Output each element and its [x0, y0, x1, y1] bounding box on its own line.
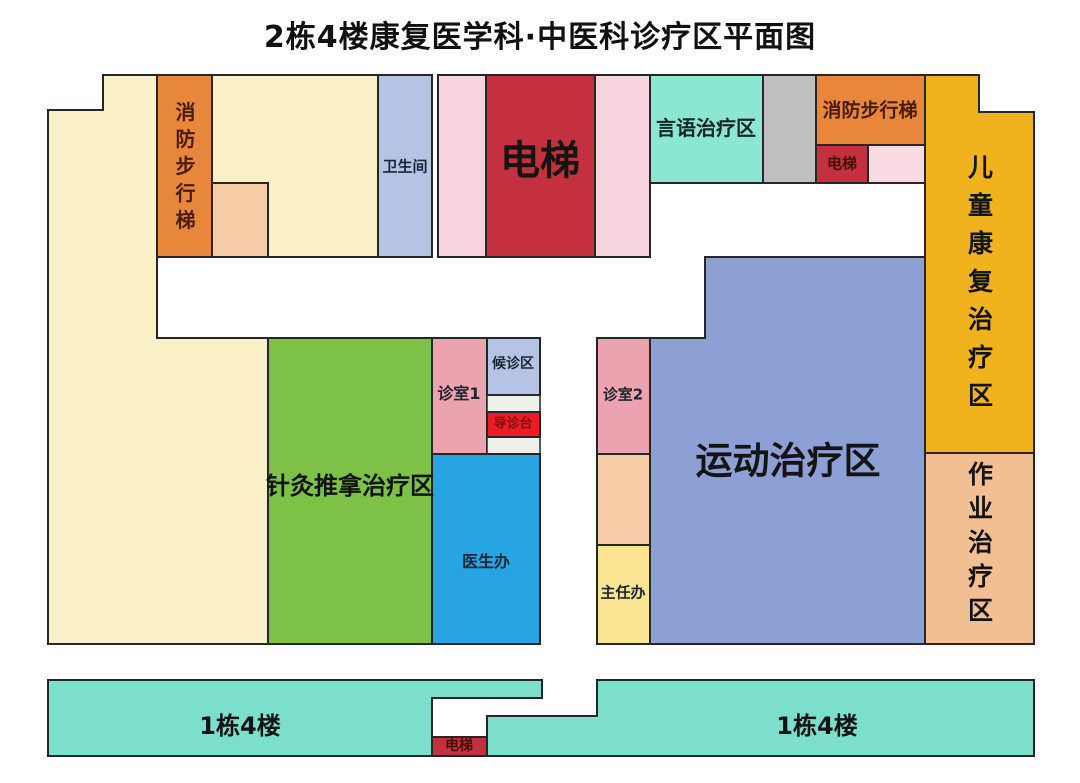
- gray-room: [763, 75, 816, 183]
- director-office-room: [597, 545, 650, 644]
- building1-strip-right: [487, 680, 1034, 756]
- fire-stairs-left-room: [157, 75, 212, 257]
- consult-room-2: [597, 338, 650, 454]
- elevator-main-room: [486, 75, 595, 257]
- elevator-top-right-room: [816, 145, 868, 183]
- pink-block-top-right: [868, 145, 925, 183]
- children-rehab-room: [925, 75, 1034, 453]
- occupational-therapy-room: [925, 453, 1034, 644]
- floor-plan: 2栋4楼康复医学科·中医科诊疗区平面图 消防步行梯 卫生间 电梯 言语治疗区 消…: [0, 0, 1080, 783]
- exercise-therapy-room: [650, 257, 925, 644]
- floor-plan-canvas: [0, 0, 1080, 783]
- doctor-office-room: [432, 454, 540, 644]
- guidance-desk-room: [487, 412, 540, 437]
- elevator-bottom-room: [432, 737, 487, 756]
- speech-therapy-room: [650, 75, 763, 183]
- restroom-room: [378, 75, 432, 257]
- fire-stairs-top-right-room: [816, 75, 925, 145]
- consult-room-1: [432, 338, 487, 454]
- waiting-area-room: [487, 338, 540, 395]
- pink-strip-left-of-elevator: [438, 75, 486, 257]
- peach-room-middle: [597, 454, 650, 545]
- acupuncture-massage-room: [268, 338, 432, 644]
- peach-room-top: [212, 183, 268, 257]
- pink-strip-right-of-elevator: [595, 75, 650, 257]
